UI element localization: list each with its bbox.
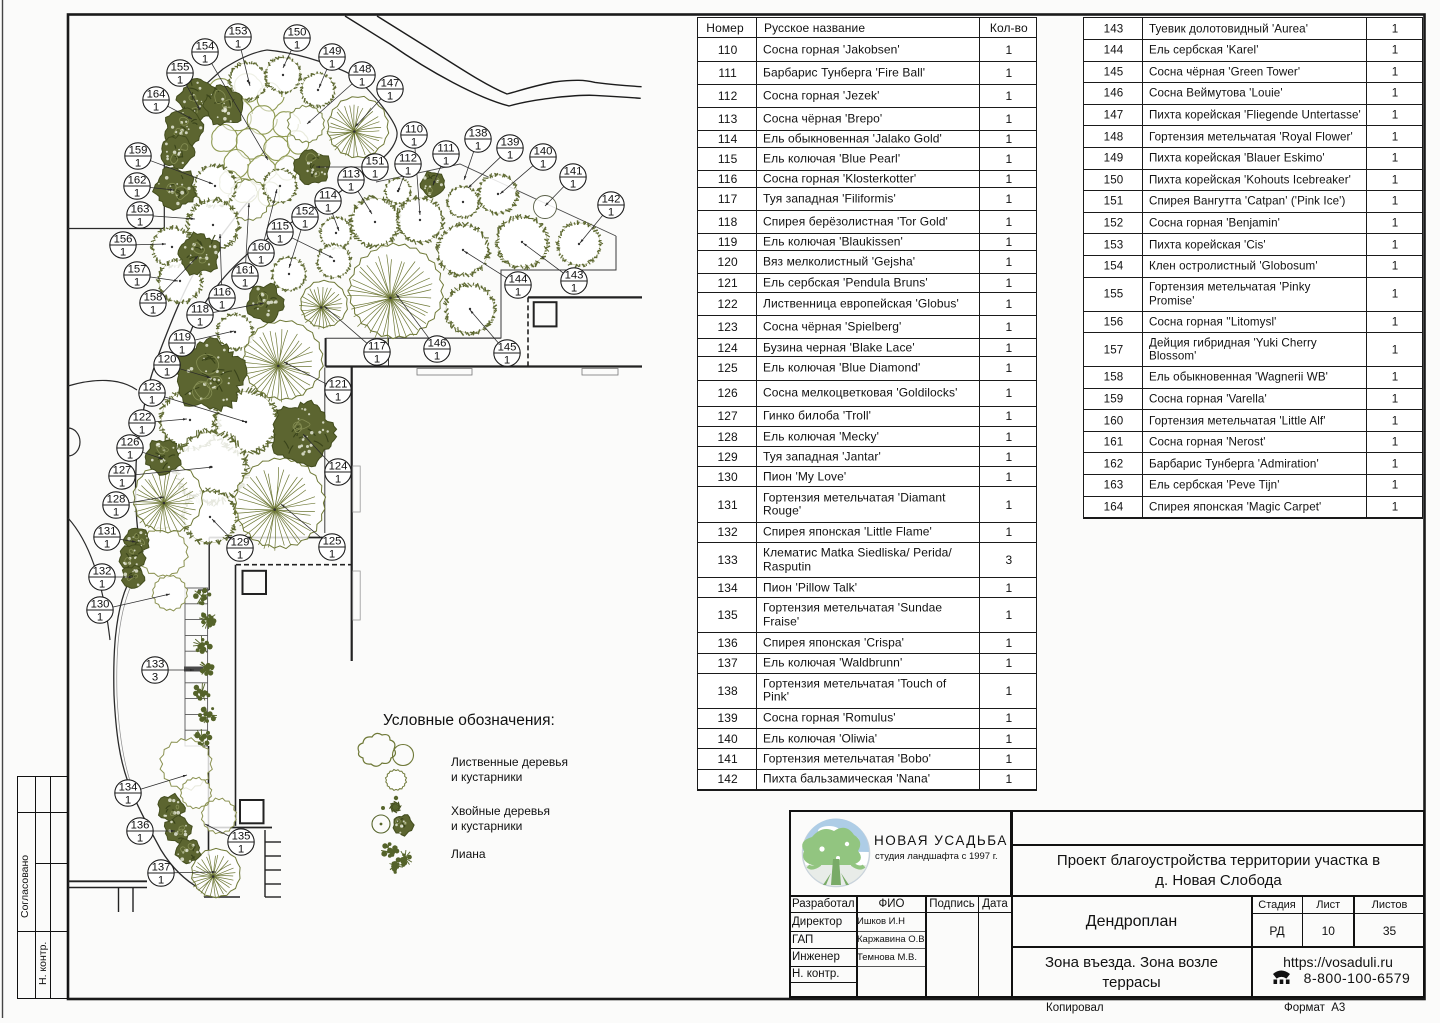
svg-text:1: 1 [153, 102, 159, 114]
svg-text:3: 3 [152, 672, 158, 684]
svg-text:124: 124 [329, 461, 348, 473]
svg-text:1: 1 [434, 351, 440, 363]
svg-text:117: 117 [368, 341, 386, 353]
svg-text:1: 1 [127, 450, 133, 462]
svg-text:154: 154 [196, 41, 215, 53]
svg-text:1: 1 [540, 159, 546, 171]
svg-text:1: 1 [137, 833, 143, 845]
svg-text:152: 152 [296, 206, 315, 218]
svg-text:118: 118 [191, 304, 209, 316]
svg-text:1: 1 [515, 287, 521, 299]
svg-text:1: 1 [179, 345, 185, 357]
svg-text:163: 163 [131, 204, 150, 216]
svg-text:1: 1 [608, 207, 614, 219]
svg-text:157: 157 [128, 264, 147, 276]
svg-text:137: 137 [152, 862, 171, 874]
svg-text:138: 138 [469, 128, 488, 140]
svg-text:134: 134 [119, 782, 138, 794]
svg-text:1: 1 [177, 75, 183, 87]
svg-text:1: 1 [405, 166, 411, 178]
svg-text:161: 161 [236, 265, 255, 277]
svg-text:1: 1 [149, 395, 155, 407]
svg-text:164: 164 [147, 89, 166, 101]
svg-text:1: 1 [134, 277, 140, 289]
svg-text:1: 1 [238, 844, 244, 856]
svg-text:114: 114 [319, 190, 337, 202]
svg-text:113: 113 [342, 169, 360, 181]
svg-text:1: 1 [139, 425, 145, 437]
svg-text:1: 1 [277, 234, 283, 246]
svg-text:1: 1 [335, 474, 341, 486]
svg-text:150: 150 [288, 27, 307, 39]
svg-text:1: 1 [335, 392, 341, 404]
svg-text:128: 128 [107, 494, 126, 506]
svg-text:139: 139 [501, 137, 520, 149]
svg-text:1: 1 [443, 156, 449, 168]
svg-text:1: 1 [113, 507, 119, 519]
svg-text:1: 1 [164, 367, 170, 379]
svg-text:1: 1 [329, 549, 335, 561]
svg-text:1: 1 [475, 141, 481, 153]
svg-text:1: 1 [348, 182, 354, 194]
svg-text:1: 1 [134, 188, 140, 200]
svg-text:1: 1 [97, 612, 103, 624]
svg-text:1: 1 [158, 875, 164, 887]
svg-text:1: 1 [137, 217, 143, 229]
svg-text:1: 1 [99, 579, 105, 591]
svg-text:159: 159 [129, 145, 148, 157]
svg-text:1: 1 [258, 255, 264, 267]
svg-text:1: 1 [104, 539, 110, 551]
svg-text:1: 1 [242, 278, 248, 290]
svg-text:144: 144 [509, 274, 528, 286]
svg-text:145: 145 [498, 342, 517, 354]
svg-text:123: 123 [143, 382, 162, 394]
svg-text:1: 1 [374, 354, 380, 366]
svg-text:115: 115 [271, 221, 289, 233]
svg-text:120: 120 [158, 354, 177, 366]
svg-text:1: 1 [197, 317, 203, 329]
svg-text:1: 1 [302, 219, 308, 231]
svg-text:132: 132 [93, 566, 112, 578]
svg-text:1: 1 [125, 795, 131, 807]
svg-text:136: 136 [131, 820, 150, 832]
svg-text:148: 148 [353, 64, 372, 76]
svg-text:156: 156 [114, 234, 133, 246]
svg-text:1: 1 [507, 150, 513, 162]
svg-text:1: 1 [571, 283, 577, 295]
svg-text:158: 158 [144, 292, 163, 304]
svg-text:162: 162 [128, 175, 147, 187]
svg-text:1: 1 [150, 305, 156, 317]
svg-text:1: 1 [202, 54, 208, 66]
svg-text:160: 160 [252, 242, 271, 254]
svg-text:127: 127 [113, 465, 132, 477]
svg-text:143: 143 [565, 270, 584, 282]
svg-text:126: 126 [121, 437, 140, 449]
svg-text:1: 1 [119, 478, 125, 490]
svg-text:110: 110 [405, 124, 423, 136]
svg-text:1: 1 [372, 169, 378, 181]
svg-text:135: 135 [232, 831, 251, 843]
svg-text:153: 153 [229, 26, 248, 38]
svg-text:1: 1 [329, 59, 335, 71]
svg-text:1: 1 [411, 137, 417, 149]
svg-text:142: 142 [602, 194, 621, 206]
svg-text:1: 1 [235, 39, 241, 51]
svg-text:1: 1 [504, 355, 510, 367]
svg-text:1: 1 [325, 203, 331, 215]
svg-text:1: 1 [570, 179, 576, 191]
svg-text:133: 133 [146, 659, 165, 671]
svg-text:1: 1 [387, 91, 393, 103]
svg-text:1: 1 [237, 550, 243, 562]
svg-text:116: 116 [213, 287, 231, 299]
svg-text:151: 151 [366, 156, 385, 168]
svg-text:1: 1 [294, 40, 300, 52]
svg-text:1: 1 [135, 158, 141, 170]
svg-text:155: 155 [171, 62, 190, 74]
svg-text:111: 111 [437, 143, 454, 155]
svg-text:131: 131 [98, 526, 117, 538]
svg-text:119: 119 [173, 332, 191, 344]
svg-text:1: 1 [359, 77, 365, 89]
svg-text:141: 141 [564, 166, 583, 178]
svg-text:149: 149 [323, 46, 342, 58]
svg-text:125: 125 [323, 536, 342, 548]
svg-text:121: 121 [329, 379, 348, 391]
svg-text:1: 1 [120, 247, 126, 259]
svg-text:112: 112 [399, 153, 417, 165]
svg-text:122: 122 [133, 412, 152, 424]
svg-text:130: 130 [91, 599, 110, 611]
svg-text:1: 1 [219, 300, 225, 312]
svg-text:140: 140 [534, 146, 553, 158]
svg-text:129: 129 [231, 537, 250, 549]
svg-text:147: 147 [381, 78, 400, 90]
svg-text:146: 146 [428, 338, 447, 350]
